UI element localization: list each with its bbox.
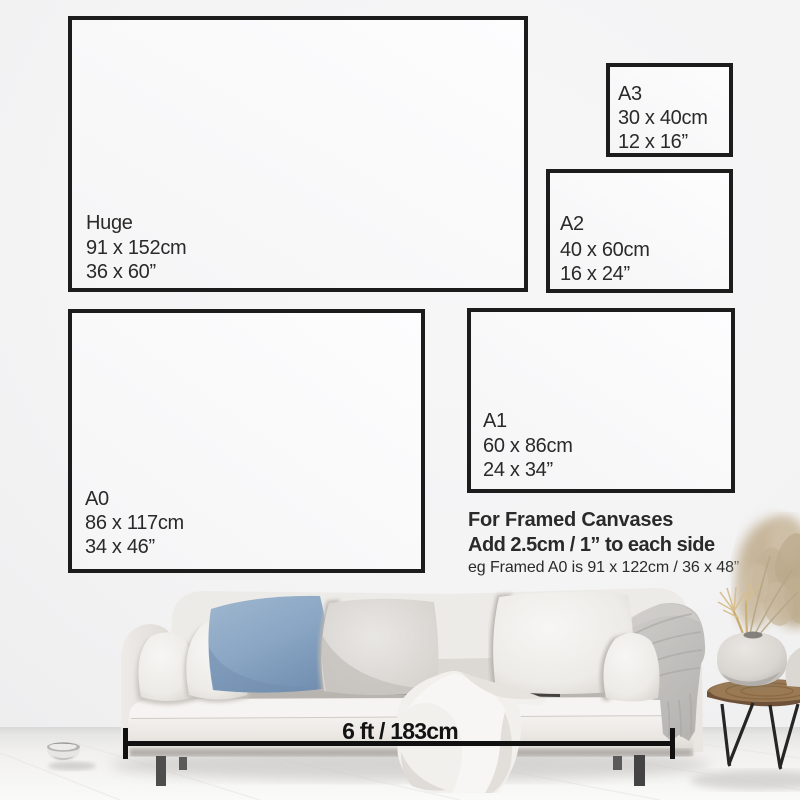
svg-text:6 ft / 183cm: 6 ft / 183cm bbox=[342, 718, 458, 744]
svg-text:36 x 60”: 36 x 60” bbox=[86, 261, 156, 283]
svg-text:A0: A0 bbox=[85, 488, 109, 510]
svg-text:30 x 40cm: 30 x 40cm bbox=[618, 107, 708, 129]
svg-text:A1: A1 bbox=[483, 410, 507, 432]
svg-text:91 x 152cm: 91 x 152cm bbox=[86, 237, 186, 259]
svg-text:16 x 24”: 16 x 24” bbox=[560, 263, 630, 285]
svg-text:60 x 86cm: 60 x 86cm bbox=[483, 435, 573, 457]
svg-text:40 x 60cm: 40 x 60cm bbox=[560, 239, 650, 261]
svg-text:A3: A3 bbox=[618, 83, 642, 105]
svg-text:24 x 34”: 24 x 34” bbox=[483, 459, 553, 481]
svg-text:12 x 16”: 12 x 16” bbox=[618, 131, 688, 153]
svg-text:eg Framed A0 is 91 x 122cm / 3: eg Framed A0 is 91 x 122cm / 36 x 48” bbox=[468, 559, 739, 576]
svg-text:Huge: Huge bbox=[86, 212, 133, 234]
svg-text:34 x 46”: 34 x 46” bbox=[85, 536, 155, 558]
svg-text:For Framed Canvases: For Framed Canvases bbox=[468, 509, 673, 531]
svg-text:Add 2.5cm / 1” to each side: Add 2.5cm / 1” to each side bbox=[468, 534, 715, 556]
svg-text:86 x 117cm: 86 x 117cm bbox=[85, 512, 184, 534]
svg-text:A2: A2 bbox=[560, 213, 584, 235]
